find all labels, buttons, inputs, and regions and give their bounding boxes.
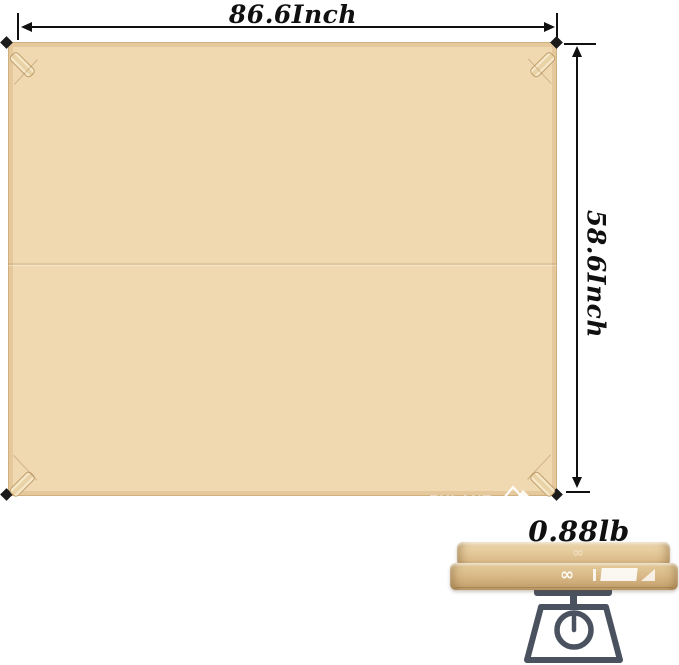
mountain-icon xyxy=(498,484,538,506)
product-dimension-diagram: 86.6Inch 58.6Inch EULANT Outdoors Easy &… xyxy=(0,0,679,665)
brand-name: EULANT xyxy=(428,492,491,508)
scale-icon xyxy=(518,581,630,665)
height-tick-bottom xyxy=(566,491,590,493)
folded-tarp: ∞ ∞ xyxy=(450,542,678,592)
height-dimension-label: 58.6Inch xyxy=(584,210,609,338)
arrowhead-down-icon xyxy=(572,477,582,488)
width-tick-left xyxy=(17,13,19,40)
arrowhead-left-icon xyxy=(21,22,32,32)
tarp-surface: EULANT Outdoors Easy & Healthy & Comfort xyxy=(8,42,557,496)
arrowhead-up-icon xyxy=(572,46,582,57)
height-arrow-line xyxy=(576,56,578,478)
height-tick-top xyxy=(564,43,596,45)
infinity-logo-ghost-icon: ∞ xyxy=(572,546,584,560)
brand-logo: EULANT Outdoors Easy & Healthy & Comfort xyxy=(426,484,538,516)
tarp-seam xyxy=(8,263,557,265)
folded-tarp-label-bar xyxy=(593,569,596,581)
brand-subtitle: Outdoors xyxy=(511,506,538,512)
width-dimension-label: 86.6Inch xyxy=(229,2,357,27)
brand-tagline: Easy & Healthy & Comfort xyxy=(428,507,513,514)
arrowhead-right-icon xyxy=(544,22,555,32)
infinity-logo-icon: ∞ xyxy=(560,567,574,584)
width-arrow-line xyxy=(30,26,546,28)
folded-tarp-label xyxy=(600,568,637,581)
